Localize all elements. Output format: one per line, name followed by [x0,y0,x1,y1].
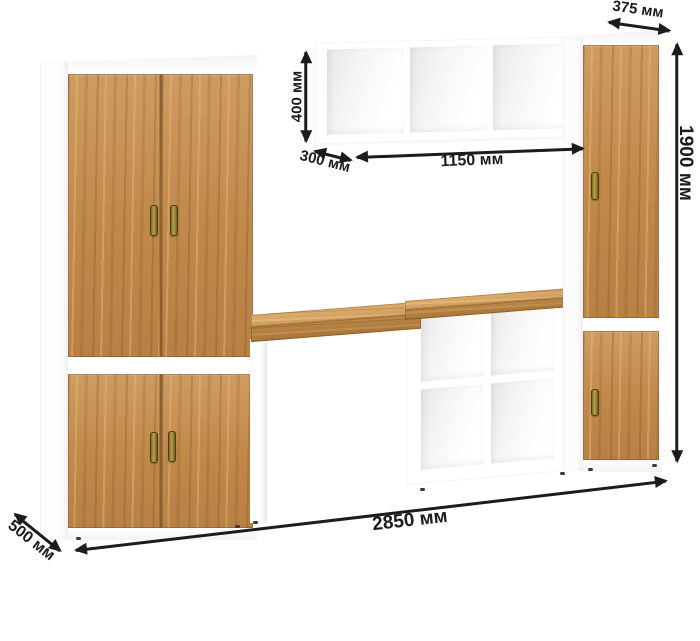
dimension-label-shelf-height: 400 мм [289,57,306,137]
cabinet-foot [253,521,258,524]
cabinet-foot [235,525,240,528]
left-cabinet-side-panel [40,61,68,540]
wall-shelf [315,36,580,144]
door-handle [150,432,158,463]
dimension-label-shelf-width: 1150 мм [420,150,525,172]
dimension-label-total-width: 2850 мм [359,504,461,537]
door-handle [150,205,158,236]
right-cabinet-side-panel [563,37,583,471]
left-cabinet-upper-door-left [68,74,162,357]
wall-shelf-compartment [410,45,487,132]
right-cabinet-base [583,460,662,472]
desk-top [251,302,421,342]
left-cabinet [68,70,257,540]
dimension-arrow-top-depth [609,21,670,32]
door-handle [170,205,178,236]
door-handle [591,389,599,416]
cabinet-foot [76,537,81,540]
furniture-dimension-diagram: 375 мм 400 мм 300 мм 1150 мм 1900 мм 285… [0,0,700,641]
cabinet-foot [652,464,657,467]
cabinet-foot [560,472,565,475]
door-handle [591,172,599,200]
desk-leg-panel [250,339,267,523]
wall-shelf-compartment [327,48,404,135]
cabinet-foot [420,488,425,491]
wall-shelf-compartment [493,43,571,130]
cabinet-foot [588,468,593,471]
dimension-label-total-height: 1900 мм [674,123,696,203]
cube-shelf-compartment [421,384,483,469]
cube-shelf-compartment [491,378,554,464]
dimension-arrow-total-height [676,44,679,461]
left-cabinet-lower-door-left [68,374,162,528]
cube-shelf-compartment [421,307,483,381]
door-handle [168,431,176,462]
